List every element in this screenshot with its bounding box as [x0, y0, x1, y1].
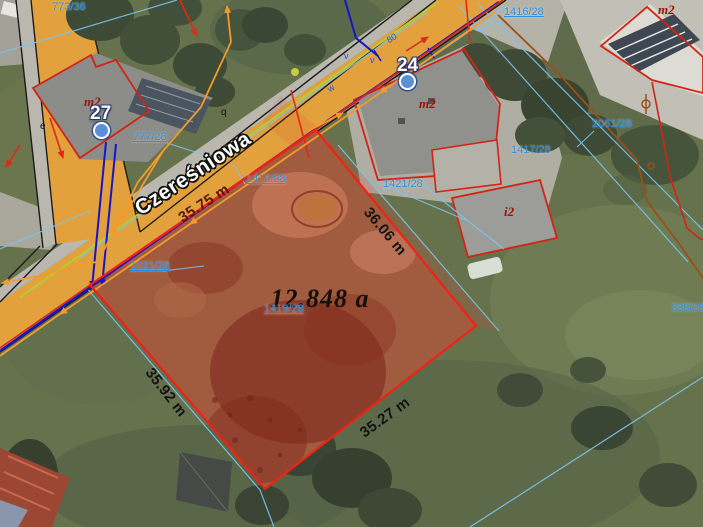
building-label: m2: [419, 97, 436, 110]
parcel-number-label: 388/28: [671, 303, 703, 314]
survey-mark: q: [221, 108, 227, 118]
map-labels-overlay: Czereśniowa 35.75 m 36.06 m 35.92 m 35.2…: [0, 0, 703, 527]
measurement-south: 35.27 m: [347, 387, 424, 449]
parcel-number-label: 777/28: [133, 132, 167, 143]
parcel-number-label: 773/36: [52, 2, 86, 13]
building-label: m2: [658, 3, 675, 16]
map-viewport: Czereśniowa 35.75 m 36.06 m 35.92 m 35.2…: [0, 0, 703, 527]
survey-mark: e: [40, 122, 46, 132]
parcel-number-label: 2061/28: [592, 119, 632, 130]
parcel-area-label: 12.848 a: [230, 286, 410, 312]
parcel-number-label: 1416/28: [504, 7, 544, 18]
survey-mark: v: [344, 52, 349, 61]
parcel-number-label: 1418/28: [246, 174, 286, 185]
measurement-west: 35.92 m: [134, 355, 198, 430]
parcel-number-label: 1417/28: [511, 145, 551, 156]
address-point-24[interactable]: [399, 73, 416, 90]
house-number-27[interactable]: 27: [90, 104, 111, 123]
building-label: i2: [504, 205, 514, 218]
parcel-number-label: 1021/28: [130, 261, 170, 272]
address-point-27[interactable]: [93, 122, 110, 139]
parcel-number-label: 1419/28: [264, 304, 304, 315]
parcel-number-label: 1421/28: [383, 179, 423, 190]
survey-mark: w: [326, 83, 336, 94]
survey-mark: v: [370, 56, 375, 65]
survey-mark: 80: [385, 32, 398, 45]
measurement-east: 36.06 m: [352, 195, 417, 269]
